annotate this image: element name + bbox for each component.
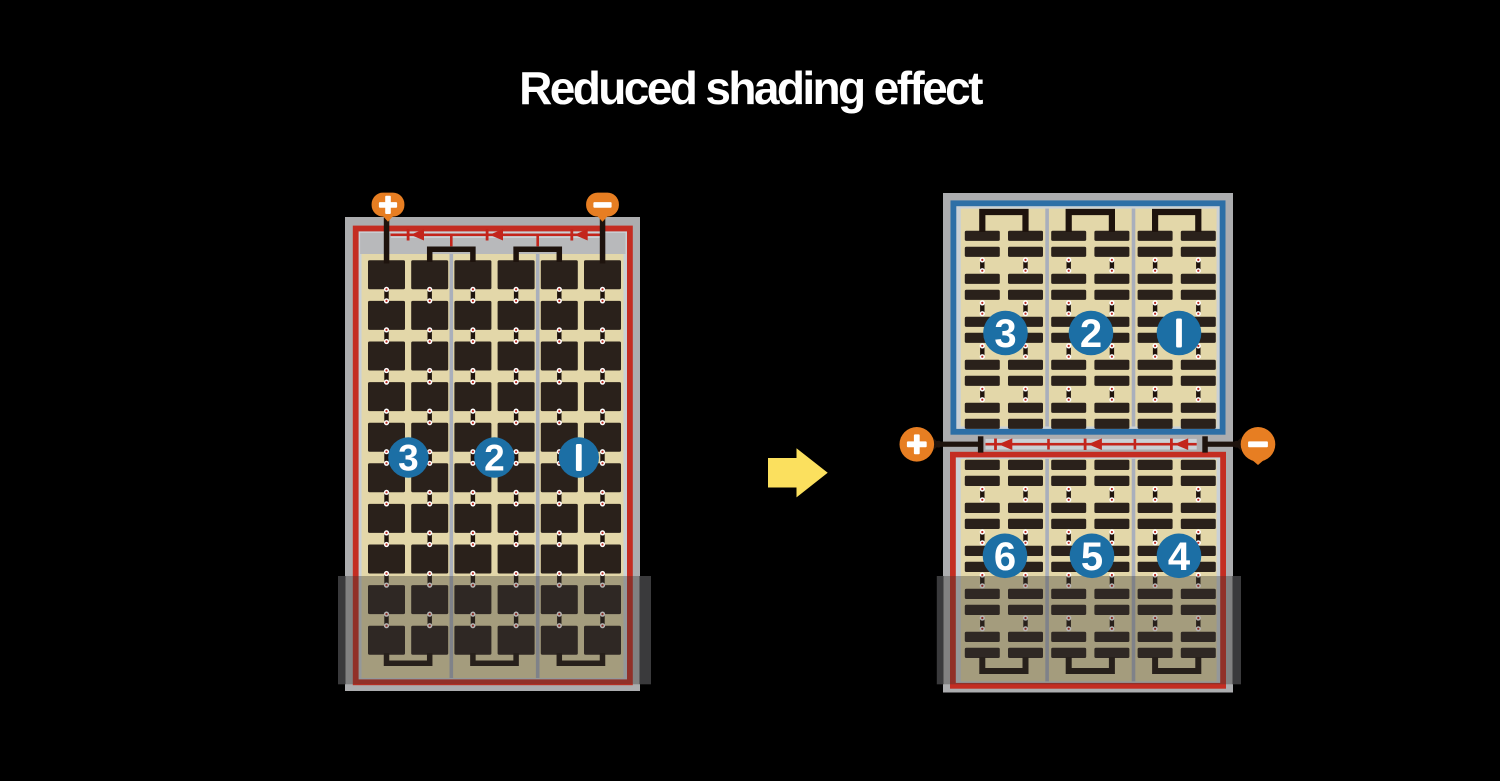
svg-text:5: 5 bbox=[1081, 535, 1103, 579]
svg-text:2: 2 bbox=[484, 438, 505, 479]
svg-text:2: 2 bbox=[1080, 312, 1102, 356]
svg-text:4: 4 bbox=[1168, 535, 1191, 579]
svg-text:3: 3 bbox=[994, 312, 1016, 356]
svg-text:Reduced shading effect: Reduced shading effect bbox=[519, 62, 983, 114]
svg-text:3: 3 bbox=[398, 438, 419, 479]
svg-text:6: 6 bbox=[994, 535, 1016, 579]
